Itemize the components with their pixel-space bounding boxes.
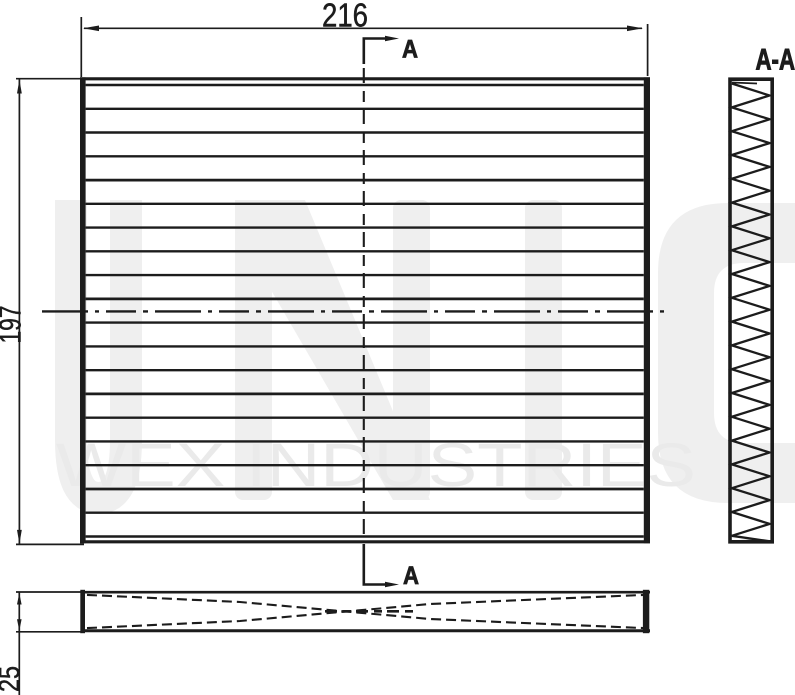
svg-text:A: A	[402, 36, 418, 64]
svg-text:197: 197	[0, 306, 28, 344]
svg-text:A: A	[403, 562, 419, 590]
svg-text:A-A: A-A	[756, 44, 795, 77]
svg-text:216: 216	[322, 0, 368, 34]
svg-text:25: 25	[0, 666, 26, 692]
